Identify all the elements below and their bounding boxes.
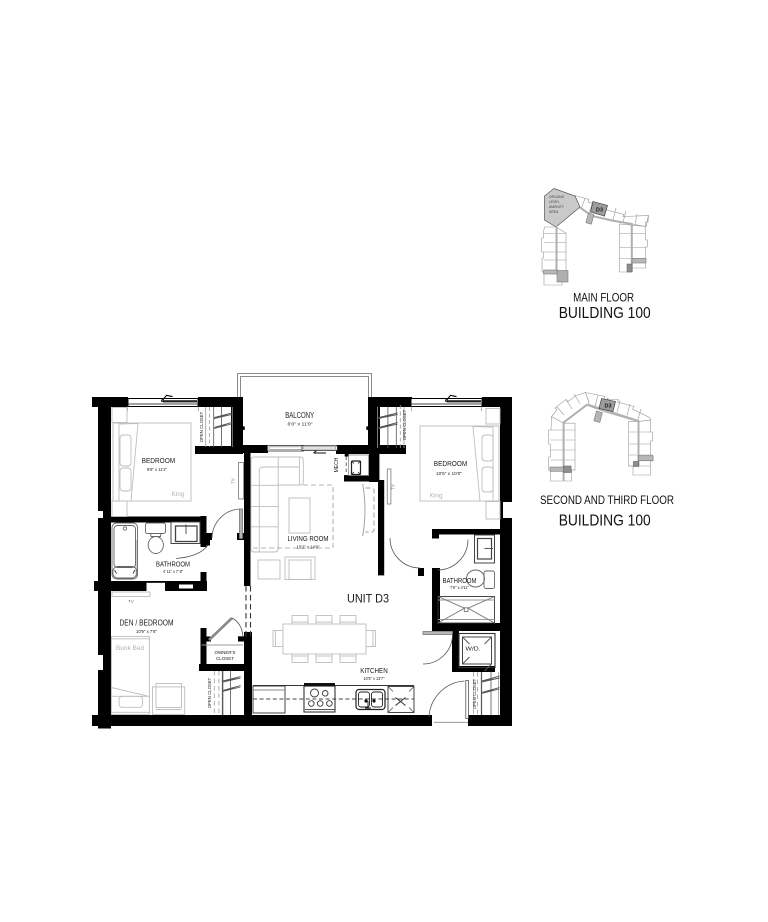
- svg-text:GROUND: GROUND: [549, 195, 565, 199]
- svg-text:AMENITY: AMENITY: [549, 205, 565, 209]
- svg-text:OPEN CLOSET: OPEN CLOSET: [199, 411, 204, 442]
- svg-text:Bunk Bed: Bunk Bed: [116, 645, 145, 652]
- svg-text:BATHROOM: BATHROOM: [156, 562, 190, 569]
- svg-text:10'9" x 7'8": 10'9" x 7'8": [136, 629, 157, 634]
- svg-text:TV: TV: [128, 599, 134, 604]
- svg-text:BUILDING 100: BUILDING 100: [559, 513, 651, 530]
- svg-text:W/D.: W/D.: [466, 647, 482, 653]
- svg-text:King: King: [171, 491, 184, 498]
- svg-text:D3: D3: [596, 208, 603, 214]
- svg-text:10'2" x 14'9": 10'2" x 14'9": [297, 544, 320, 549]
- svg-text:LIVING ROOM: LIVING ROOM: [288, 534, 329, 543]
- svg-text:BEDROOM: BEDROOM: [434, 459, 468, 468]
- svg-text:OPEN CLOSET: OPEN CLOSET: [472, 678, 477, 709]
- svg-text:AREA: AREA: [549, 210, 559, 214]
- svg-text:7'8" x 4'11": 7'8" x 4'11": [450, 585, 469, 590]
- svg-text:UNIT D3: UNIT D3: [347, 592, 389, 606]
- svg-text:SECOND AND THIRD FLOOR: SECOND AND THIRD FLOOR: [540, 493, 674, 507]
- svg-text:MAIN FLOOR: MAIN FLOOR: [573, 291, 634, 305]
- svg-text:BALCONY: BALCONY: [285, 411, 315, 420]
- svg-text:10'5" x 13'7": 10'5" x 13'7": [364, 676, 385, 681]
- svg-text:OWNER'S: OWNER'S: [214, 650, 235, 655]
- svg-text:BATHROOM: BATHROOM: [443, 578, 477, 585]
- svg-text:DEN / BEDROOM: DEN / BEDROOM: [120, 619, 174, 628]
- svg-text:OPEN CLOSET: OPEN CLOSET: [402, 409, 407, 440]
- svg-text:OPEN CLOSET: OPEN CLOSET: [207, 677, 212, 708]
- svg-text:BEDROOM: BEDROOM: [142, 456, 176, 465]
- svg-text:6'0" x 11'0": 6'0" x 11'0": [288, 422, 314, 427]
- svg-text:MECH: MECH: [334, 457, 340, 472]
- svg-text:CLOSET: CLOSET: [216, 656, 234, 661]
- svg-text:TV: TV: [231, 478, 236, 484]
- svg-text:BUILDING 100: BUILDING 100: [559, 305, 651, 322]
- svg-text:TV: TV: [391, 484, 396, 490]
- svg-text:LEVEL: LEVEL: [549, 200, 560, 204]
- svg-text:4' 11" x 7' 8": 4' 11" x 7' 8": [163, 569, 183, 574]
- svg-text:KITCHEN: KITCHEN: [360, 666, 388, 675]
- svg-text:D3: D3: [605, 404, 612, 410]
- svg-text:King: King: [429, 493, 442, 500]
- svg-text:9'8" x 11'2": 9'8" x 11'2": [147, 467, 167, 472]
- svg-text:10'5" x 10'0": 10'5" x 10'0": [436, 471, 462, 476]
